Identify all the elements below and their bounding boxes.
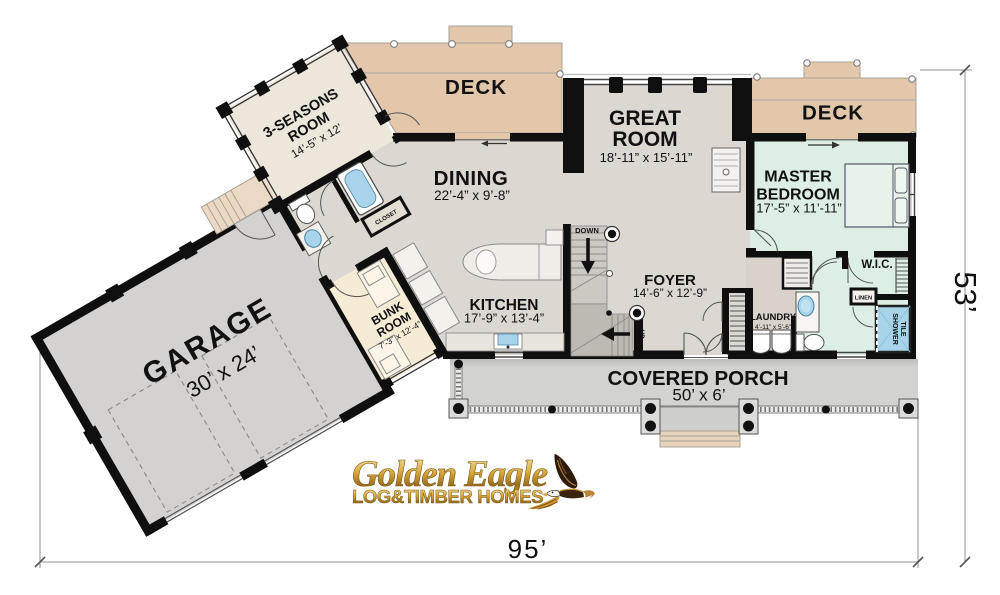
svg-text:DOWN: DOWN: [575, 226, 599, 235]
svg-text:W.I.C.: W.I.C.: [861, 259, 892, 271]
svg-text:95’: 95’: [508, 534, 549, 564]
svg-text:53’: 53’: [948, 271, 983, 312]
svg-text:LOG&TIMBER HOMES: LOG&TIMBER HOMES: [352, 486, 544, 507]
svg-text:LAUNDRY: LAUNDRY: [750, 312, 797, 323]
svg-text:17’-9” x 13’-4”: 17’-9” x 13’-4”: [464, 311, 544, 326]
svg-text:50’ x 6’: 50’ x 6’: [672, 386, 725, 405]
svg-text:DECK: DECK: [802, 102, 864, 125]
svg-text:SHOWER: SHOWER: [891, 313, 898, 345]
svg-text:18’-11” x 15’-11”: 18’-11” x 15’-11”: [600, 150, 693, 165]
svg-text:UP: UP: [638, 329, 645, 339]
svg-text:DECK: DECK: [445, 76, 507, 99]
svg-text:LINEN: LINEN: [855, 296, 872, 302]
svg-text:DINING: DINING: [434, 167, 509, 190]
svg-text:22’-4” x 9’-8”: 22’-4” x 9’-8”: [434, 188, 510, 203]
svg-text:GREAT: GREAT: [609, 107, 681, 130]
svg-text:14’-6” x 12’-9”: 14’-6” x 12’-9”: [633, 286, 707, 300]
svg-text:17’-5” x 11’-11”: 17’-5” x 11’-11”: [756, 201, 842, 216]
svg-text:ROOM: ROOM: [612, 128, 677, 151]
svg-text:TILE: TILE: [899, 321, 906, 336]
svg-text:MASTER: MASTER: [764, 169, 832, 186]
